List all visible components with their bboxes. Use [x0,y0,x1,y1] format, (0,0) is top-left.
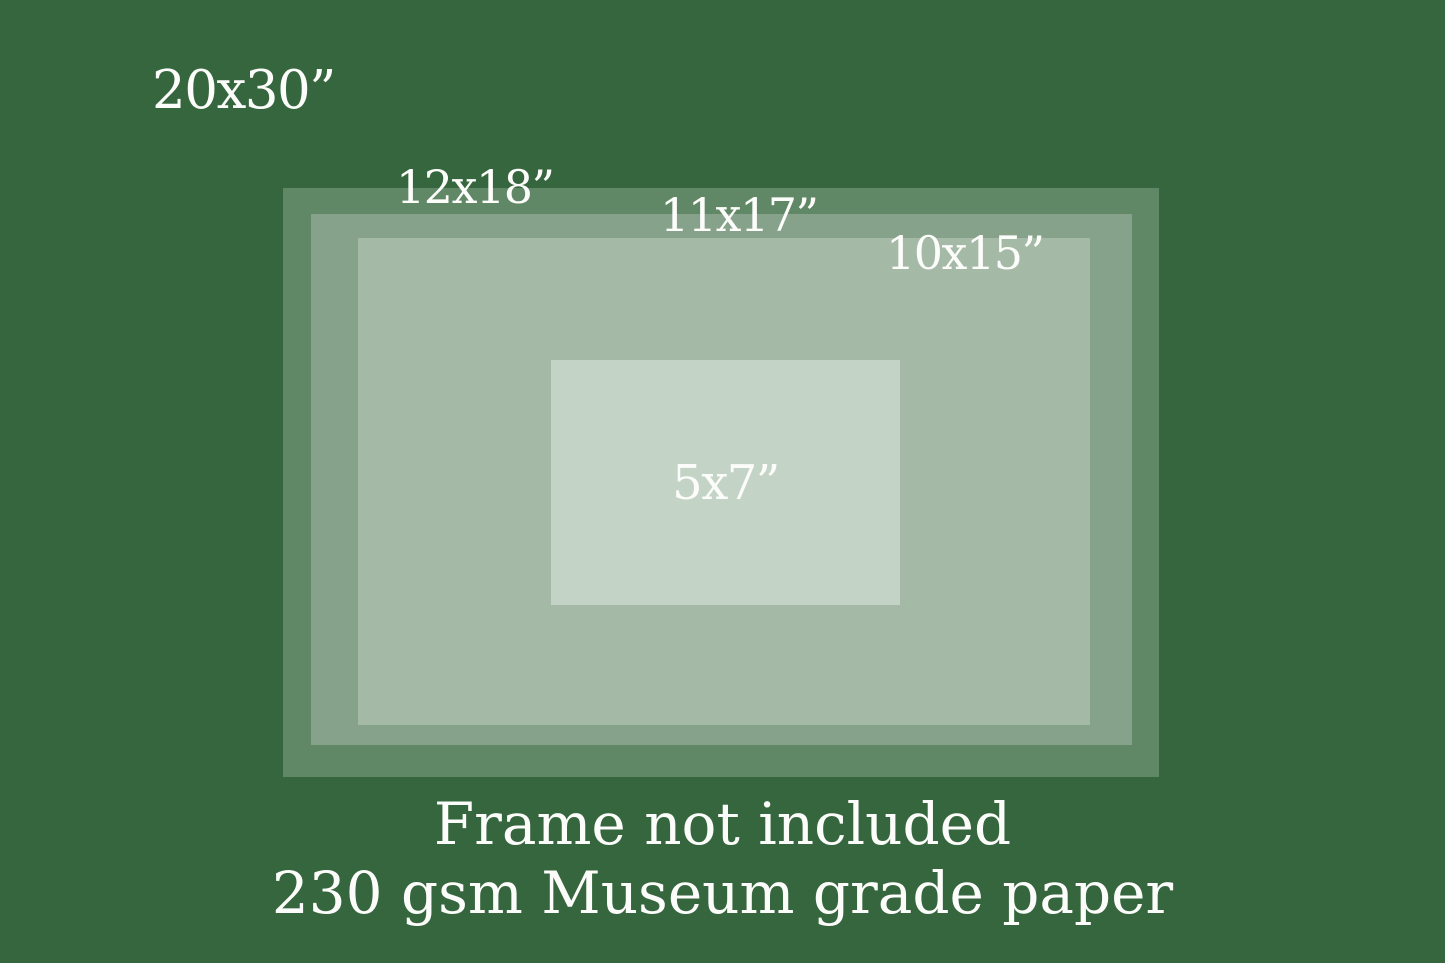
size-label-10x15: 10x15” [886,230,1044,276]
size-label-12x18: 12x18” [396,164,554,210]
size-label-20x30: 20x30” [152,64,335,117]
footer-note-paper: 230 gsm Museum grade paper [0,859,1445,928]
size-label-5x7: 5x7” [672,459,779,507]
size-label-11x17: 11x17” [660,192,818,238]
footer-notes: Frame not included 230 gsm Museum grade … [0,790,1445,928]
print-size-chart: 20x30” 12x18” 11x17” 10x15” 5x7” Frame n… [0,0,1445,963]
size-rect-5x7: 5x7” [551,360,900,605]
footer-note-frame: Frame not included [0,790,1445,859]
